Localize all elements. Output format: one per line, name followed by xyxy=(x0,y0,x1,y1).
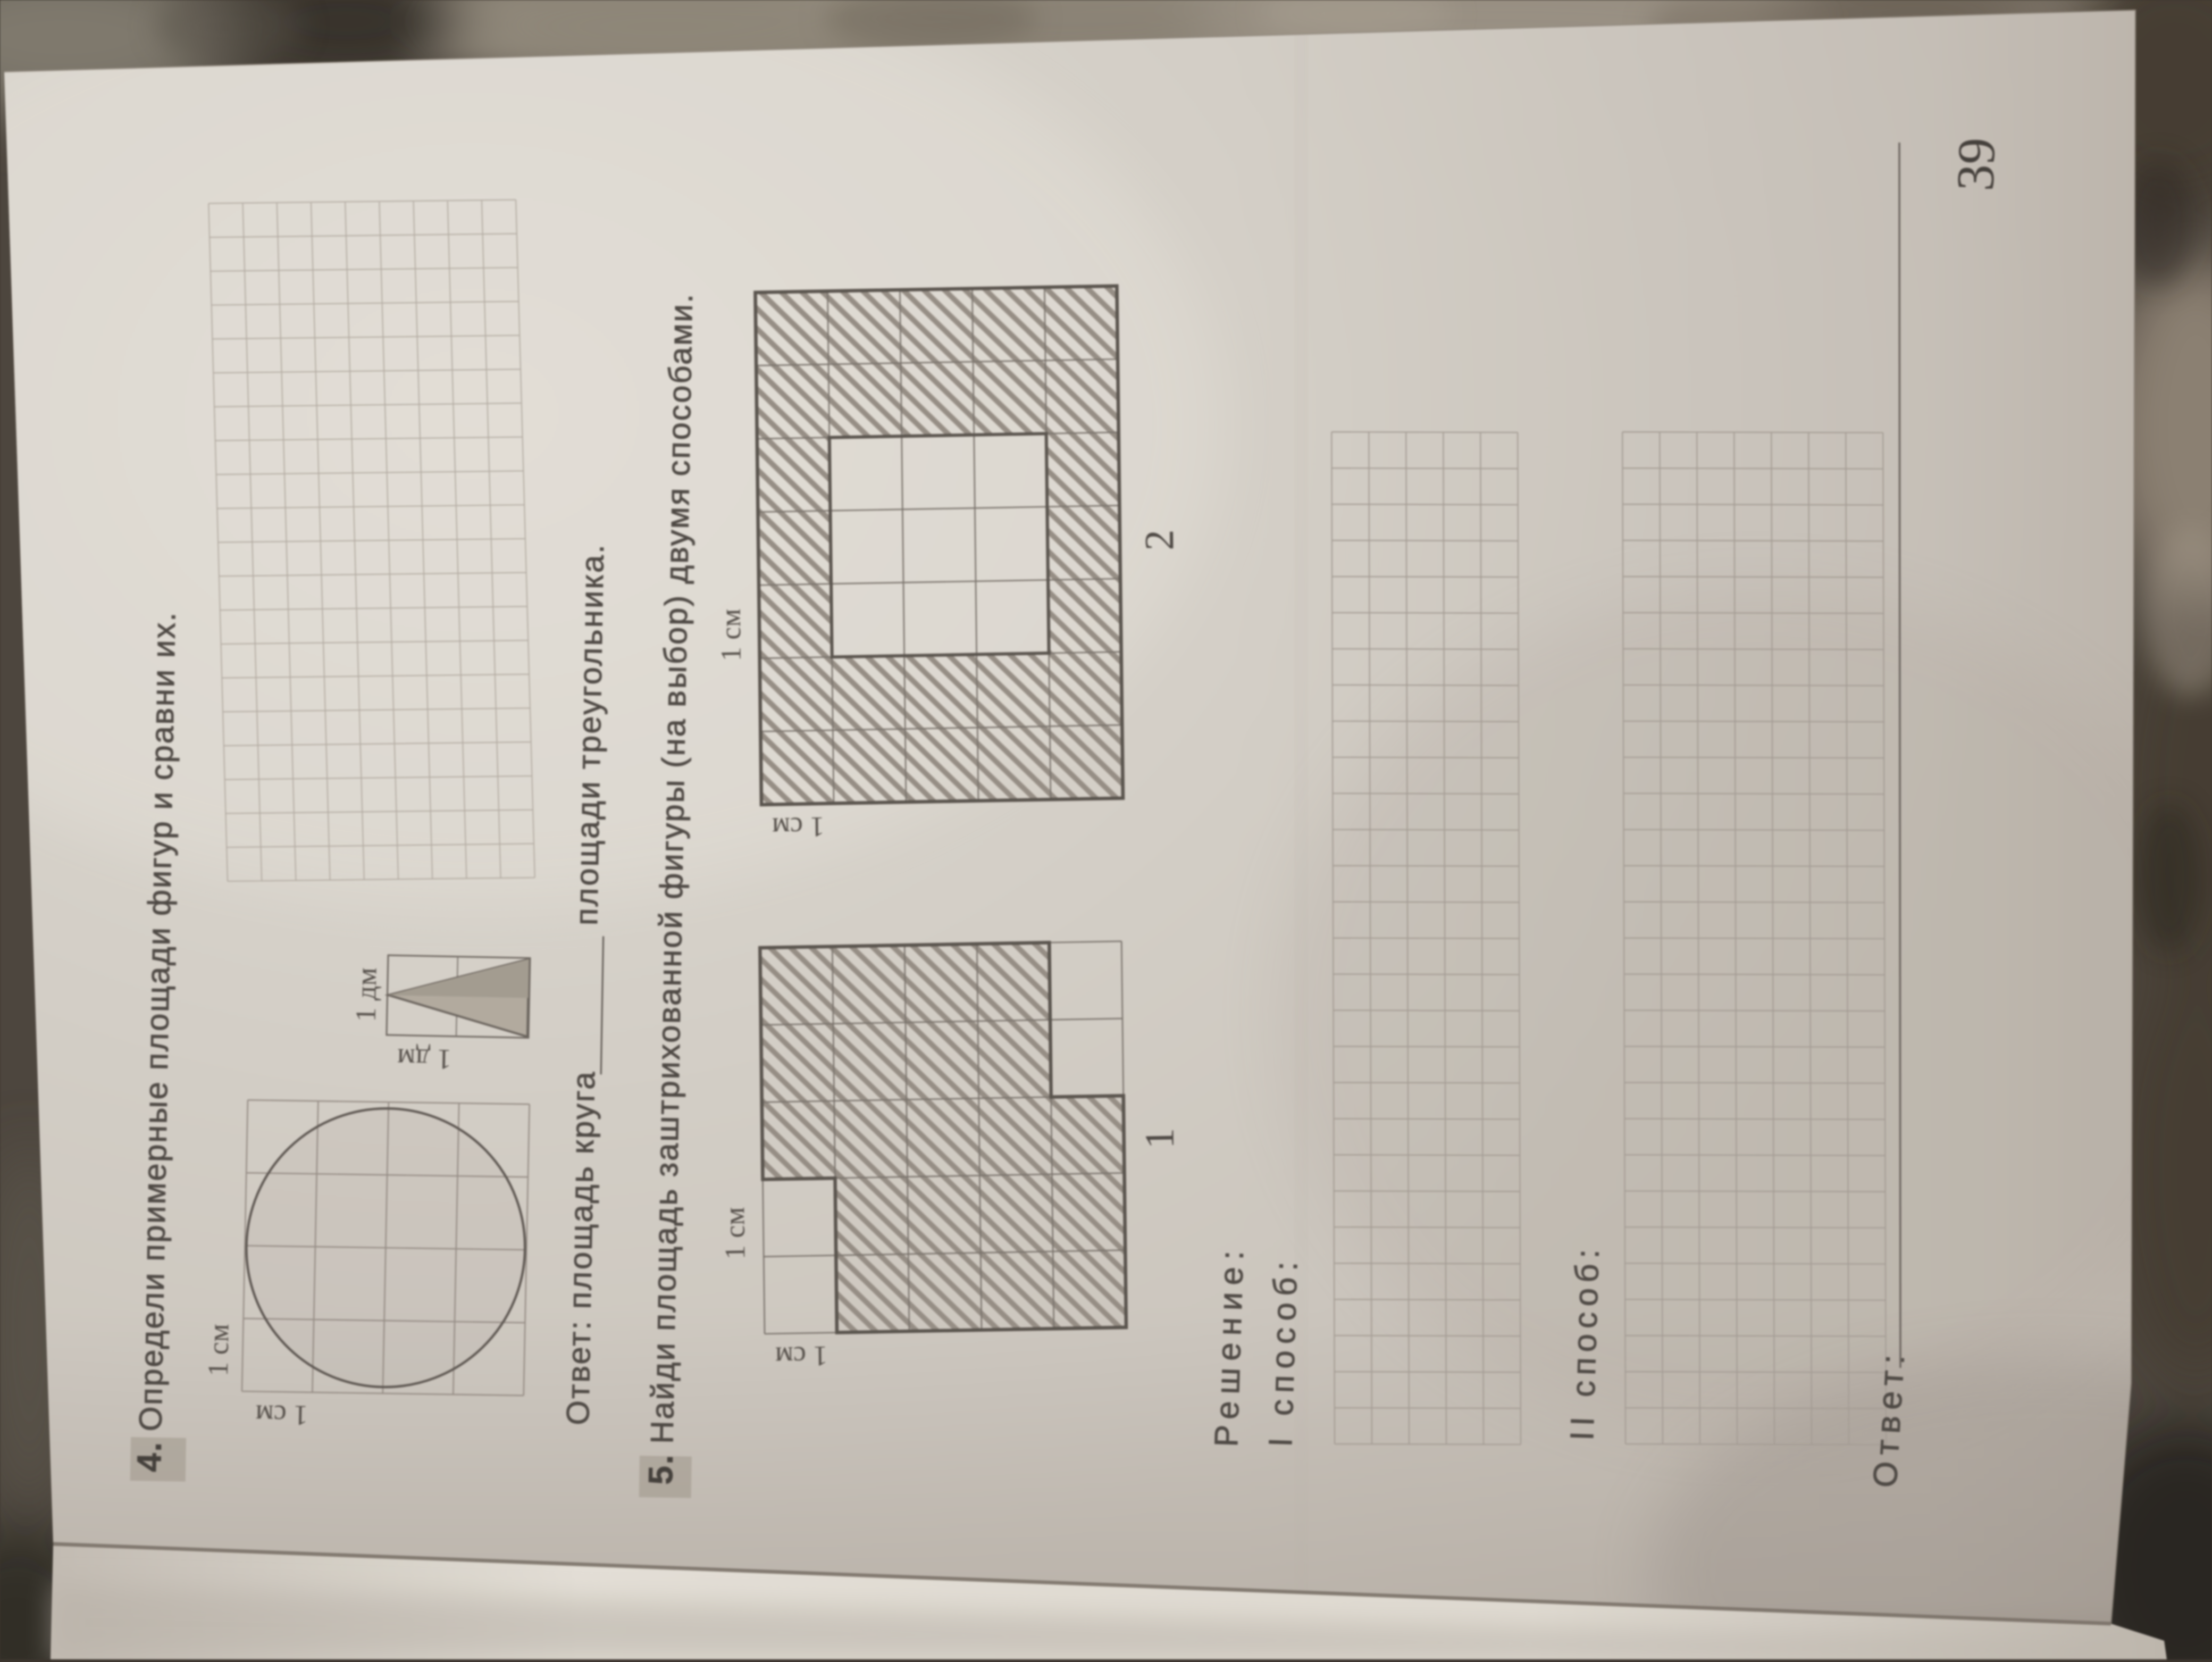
svg-text:1 см: 1 см xyxy=(715,608,747,662)
svg-text:1: 1 xyxy=(1136,1128,1182,1149)
svg-text:1 см: 1 см xyxy=(255,1399,308,1431)
svg-text:I способ:: I способ: xyxy=(1262,1255,1305,1447)
svg-text:1 см: 1 см xyxy=(718,1207,751,1260)
svg-text:2: 2 xyxy=(1136,529,1182,551)
svg-text:Решение:: Решение: xyxy=(1208,1243,1251,1448)
svg-text:1 см: 1 см xyxy=(775,1340,828,1373)
svg-text:Ответ: площадь круга: Ответ: площадь круга xyxy=(560,1070,601,1426)
svg-text:1 см: 1 см xyxy=(202,1324,235,1376)
svg-text:площади треугольника.: площади треугольника. xyxy=(568,542,610,925)
svg-text:1 см: 1 см xyxy=(772,811,825,844)
svg-text:1 дм: 1 дм xyxy=(397,1042,451,1075)
svg-text:39: 39 xyxy=(1946,137,2006,191)
svg-text:1 дм: 1 дм xyxy=(349,967,382,1022)
svg-text:II способ:: II способ: xyxy=(1564,1243,1606,1441)
